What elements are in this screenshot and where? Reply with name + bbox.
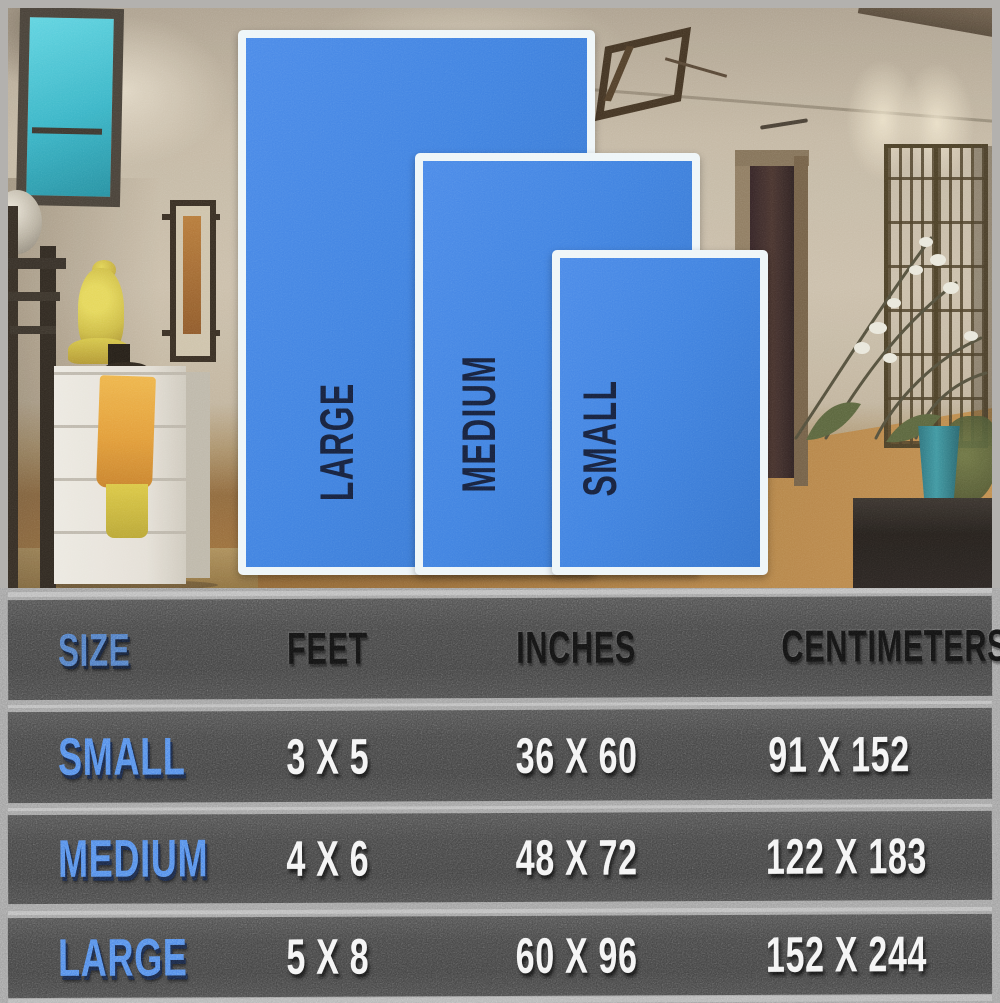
table-divider <box>8 804 992 811</box>
size-table: SIZE FEET INCHES CENTIMETERS SMALL 3 X 5… <box>0 588 1000 1003</box>
row-label-medium: MEDIUM <box>8 828 230 890</box>
rug-size-chart-infographic: LARGE MEDIUM SMALL SIZE FEET INCHES CENT… <box>0 0 1000 1003</box>
column-header-feet: FEET <box>230 622 425 675</box>
large-inches-value: 60 X 96 <box>425 926 728 985</box>
small-feet-value: 3 X 5 <box>230 727 425 786</box>
table-divider <box>8 701 992 708</box>
rug-label-small-text: SMALL <box>570 380 630 497</box>
room-photo-background: LARGE MEDIUM SMALL <box>8 8 992 588</box>
column-header-centimeters: CENTIMETERS <box>728 620 950 673</box>
table-header-row: SIZE FEET INCHES CENTIMETERS <box>8 596 992 700</box>
rug-label-medium: MEDIUM <box>449 325 509 525</box>
small-inches-value: 36 X 60 <box>425 726 728 785</box>
large-centimeters-value: 152 X 244 <box>728 925 950 984</box>
medium-centimeters-value: 122 X 183 <box>728 827 950 886</box>
row-label-large: LARGE <box>8 927 230 989</box>
row-label-small: SMALL <box>8 726 230 788</box>
large-feet-value: 5 X 8 <box>230 927 425 986</box>
rug-label-large: LARGE <box>307 342 367 542</box>
table-row-small: SMALL 3 X 5 36 X 60 91 X 152 <box>8 708 992 803</box>
column-header-size: SIZE <box>8 622 230 677</box>
column-header-inches: INCHES <box>425 621 728 674</box>
table-row-medium: MEDIUM 4 X 6 48 X 72 122 X 183 <box>8 811 992 904</box>
rug-label-medium-text: MEDIUM <box>449 355 509 493</box>
medium-feet-value: 4 X 6 <box>230 829 425 888</box>
rug-label-large-text: LARGE <box>307 383 367 502</box>
rug-label-small: SMALL <box>570 338 630 538</box>
medium-inches-value: 48 X 72 <box>425 828 728 887</box>
table-row-large: LARGE 5 X 8 60 X 96 152 X 244 <box>8 914 992 998</box>
small-centimeters-value: 91 X 152 <box>728 725 950 784</box>
